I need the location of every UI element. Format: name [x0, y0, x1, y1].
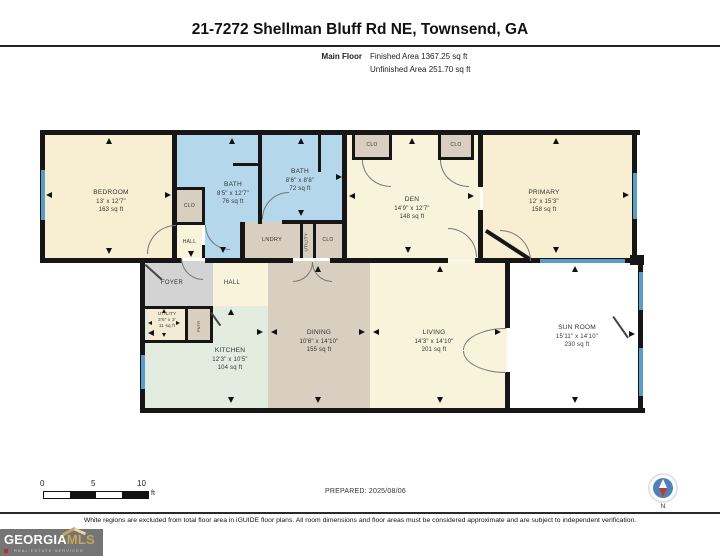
dimension-arrow-icon [572, 397, 578, 403]
wall-segment [185, 306, 188, 343]
label-den: DEN14'9" x 12'7"148 sq ft [373, 196, 451, 221]
dimension-arrow-icon [629, 331, 635, 337]
label-bedroom: BEDROOM13' x 12'7"163 sq ft [71, 189, 151, 214]
scale-tick-5: 5 [91, 479, 95, 488]
dimension-arrow-icon [468, 193, 474, 199]
dimension-arrow-icon [46, 192, 52, 198]
scale-unit: ft [151, 490, 155, 497]
dimension-arrow-icon [148, 330, 154, 336]
disclaimer-text: White regions are excluded from total fl… [0, 517, 720, 524]
dimension-arrow-icon [228, 309, 234, 315]
label-utility-sliver: UTILITY [304, 228, 309, 252]
label-clo-bedroom: CLO [177, 203, 202, 209]
label-hall-lower: HALL [212, 280, 252, 286]
scale-tick-10: 10 [137, 479, 146, 488]
dimension-arrow-icon [553, 247, 559, 253]
label-utility: UTILITY3'6" x 3'11 sq ft [150, 311, 184, 330]
dimension-arrow-icon [349, 193, 355, 199]
compass-icon: N [648, 473, 678, 503]
dimension-arrow-icon [165, 192, 171, 198]
label-lndry: LNDRY [248, 237, 296, 243]
dimension-arrow-icon [437, 397, 443, 403]
window-segment [639, 272, 643, 310]
georgia-mls-logo: GEORGIAMLS REAL ESTATE SERVICES [0, 529, 103, 556]
label-dining: DINING10'6" x 14'10"155 sq ft [279, 329, 359, 354]
wall-segment [205, 258, 293, 263]
window-segment [141, 355, 145, 389]
wall-segment [330, 258, 448, 263]
dimension-arrow-icon [315, 397, 321, 403]
compass-north-label: N [658, 503, 668, 510]
footer-divider [0, 512, 720, 514]
wall-segment [202, 245, 205, 258]
label-clo-middle: CLO [314, 237, 342, 243]
dimension-arrow-icon [437, 266, 443, 272]
dimension-arrow-icon [553, 138, 559, 144]
dimension-arrow-icon [359, 329, 365, 335]
wall-segment [140, 258, 145, 413]
dimension-arrow-icon [409, 138, 415, 144]
wall-segment [40, 130, 640, 135]
window-segment [540, 259, 625, 263]
wall-segment [318, 135, 321, 172]
scale-bar-segment [96, 492, 122, 498]
dimension-arrow-icon [298, 138, 304, 144]
label-bath-1: BATH8'5" x 12'7"76 sq ft [205, 181, 261, 206]
window-segment [639, 348, 643, 396]
window-segment [633, 173, 637, 219]
scale-bar-segment [70, 492, 96, 498]
dimension-arrow-icon [373, 329, 379, 335]
dimension-arrow-icon [405, 247, 411, 253]
dimension-arrow-icon [106, 248, 112, 254]
dimension-arrow-icon [572, 266, 578, 272]
scale-bar [43, 491, 149, 499]
label-clo-den-2: CLO [438, 142, 474, 148]
window-segment [41, 170, 45, 220]
wall-segment [505, 263, 510, 328]
compass-needle-south [659, 488, 667, 497]
dimension-arrow-icon [623, 192, 629, 198]
scale-bar-segment [44, 492, 70, 498]
dimension-arrow-icon [495, 329, 501, 335]
floorplan-page: 21-7272 Shellman Bluff Rd NE, Townsend, … [0, 0, 720, 556]
prepared-date: PREPARED: 2025/08/06 [325, 488, 406, 495]
wall-segment [258, 220, 262, 224]
label-primary: PRIMARY12' x 15'3"158 sq ft [505, 189, 583, 214]
floor-plan: BEDROOM13' x 12'7"163 sq ft BATH8'5" x 1… [0, 0, 720, 556]
label-foyer: FOYER [152, 280, 192, 286]
wall-segment [478, 130, 483, 187]
wall-segment [240, 222, 245, 258]
dimension-arrow-icon [106, 138, 112, 144]
label-kitchen: KITCHEN12'3" x 10'5"104 sq ft [191, 347, 269, 372]
label-sunroom: SUN ROOM15'11" x 14'10"230 sq ft [537, 324, 617, 349]
wall-segment [177, 222, 205, 225]
label-hall-upper: HALL [176, 239, 203, 245]
wall-segment [145, 340, 188, 343]
wall-segment [140, 408, 645, 413]
wall-segment [342, 130, 347, 263]
dimension-arrow-icon [229, 138, 235, 144]
wall-segment [233, 163, 258, 166]
wall-segment [478, 210, 483, 263]
logo-tagline: REAL ESTATE SERVICES [14, 548, 84, 553]
wall-segment [505, 372, 510, 413]
dimension-arrow-icon [298, 210, 304, 216]
label-pntr: PNTR [197, 312, 201, 332]
label-clo-den-1: CLO [352, 142, 392, 148]
compass-needle-north [659, 479, 667, 488]
dimension-arrow-icon [188, 251, 194, 257]
dimension-arrow-icon [271, 329, 277, 335]
dimension-arrow-icon [220, 247, 226, 253]
dimension-arrow-icon [162, 333, 166, 337]
scale-tick-0: 0 [40, 479, 44, 488]
wall-segment [258, 130, 262, 222]
dimension-arrow-icon [336, 174, 342, 180]
wall-segment [40, 258, 147, 263]
dimension-arrow-icon [257, 329, 263, 335]
label-living: LIVING14'3" x 14'10"201 sq ft [394, 329, 474, 354]
scale-bar-segment [122, 492, 148, 498]
dimension-arrow-icon [228, 397, 234, 403]
logo-wordmark: GEORGIAMLS [4, 532, 95, 547]
logo-accent-square [4, 549, 8, 553]
wall-segment [145, 306, 188, 309]
label-bath-2: BATH8'6" x 8'8"72 sq ft [272, 168, 328, 193]
wall-segment [177, 187, 205, 190]
dimension-arrow-icon [315, 266, 321, 272]
